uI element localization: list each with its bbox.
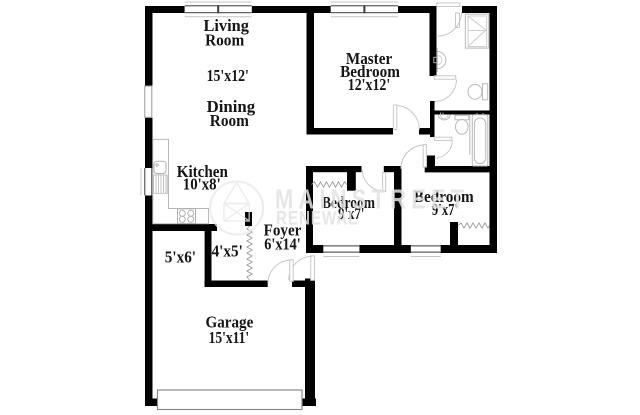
svg-text:10'x8': 10'x8' xyxy=(183,174,221,193)
svg-text:15'x11': 15'x11' xyxy=(209,328,250,347)
svg-text:Room: Room xyxy=(210,111,249,130)
svg-text:5'x6': 5'x6' xyxy=(165,247,196,266)
svg-text:Room: Room xyxy=(205,31,244,50)
svg-text:15'x12': 15'x12' xyxy=(207,66,249,85)
svg-text:12'x12': 12'x12' xyxy=(348,75,390,94)
svg-text:RENEWAL: RENEWAL xyxy=(276,207,359,229)
svg-text:4'x5': 4'x5' xyxy=(212,241,243,260)
svg-text:6'x14': 6'x14' xyxy=(264,234,300,253)
